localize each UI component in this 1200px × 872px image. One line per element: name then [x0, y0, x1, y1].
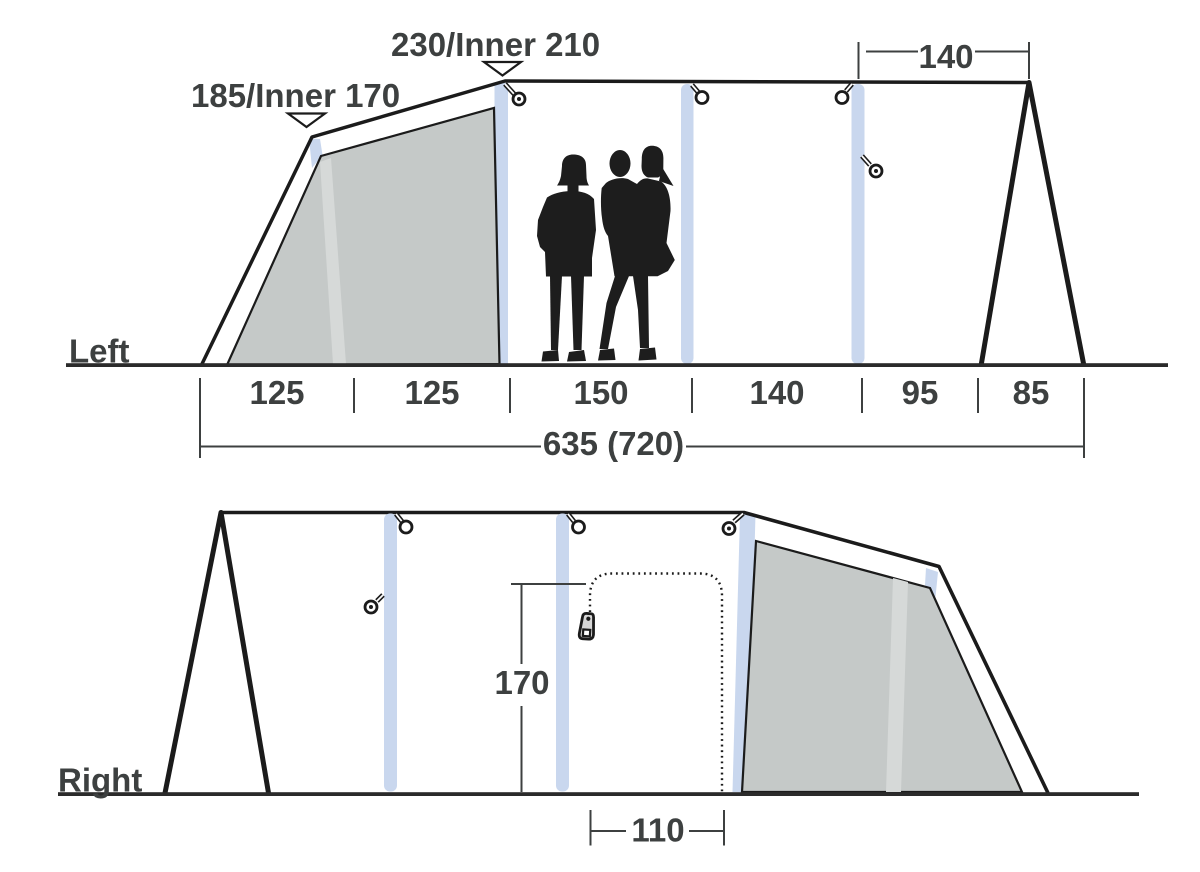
- svg-text:185/Inner 170: 185/Inner 170: [191, 77, 400, 114]
- svg-text:Left: Left: [69, 333, 130, 370]
- svg-text:125: 125: [249, 374, 304, 411]
- svg-text:125: 125: [404, 374, 459, 411]
- svg-text:95: 95: [902, 374, 939, 411]
- svg-text:230/Inner 210: 230/Inner 210: [391, 26, 600, 63]
- svg-text:140: 140: [749, 374, 804, 411]
- svg-text:85: 85: [1013, 374, 1050, 411]
- svg-text:Right: Right: [58, 762, 142, 799]
- svg-text:635 (720): 635 (720): [543, 425, 684, 462]
- svg-text:140: 140: [918, 38, 973, 75]
- svg-text:150: 150: [573, 374, 628, 411]
- svg-text:110: 110: [631, 812, 684, 849]
- svg-text:170: 170: [494, 664, 549, 701]
